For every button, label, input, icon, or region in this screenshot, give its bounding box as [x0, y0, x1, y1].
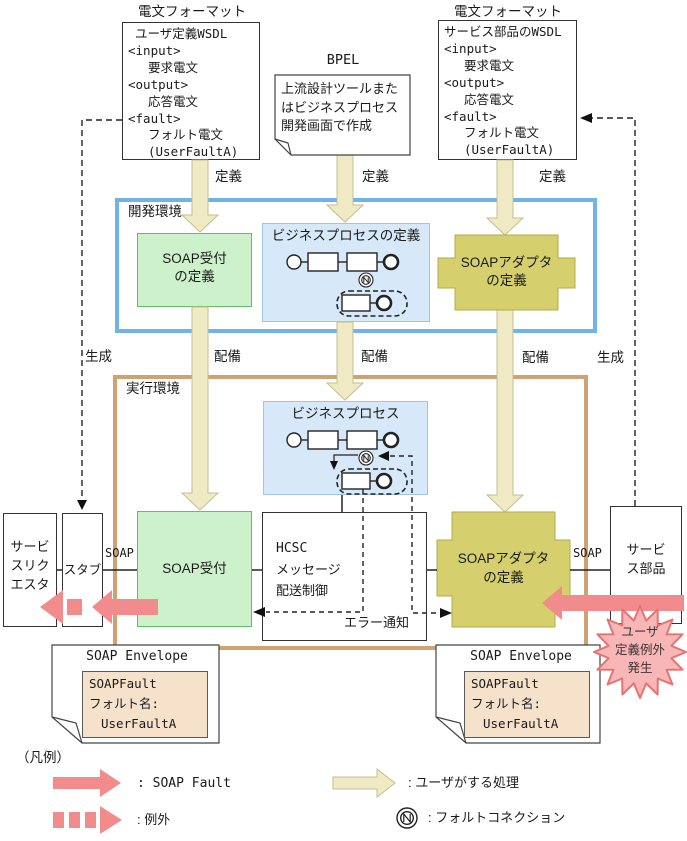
bpel-note-line: はビジネスプロセス — [281, 99, 398, 118]
activity-icon — [308, 431, 338, 449]
bp-def-mini-diagram — [287, 253, 407, 316]
legend-exception-dash — [85, 812, 96, 828]
soap-label-left: SOAP — [105, 545, 134, 561]
stub-label: スタブ — [62, 562, 103, 578]
error-arrowhead-to-faultconn — [378, 451, 389, 461]
deploy-arrow-middle — [327, 322, 363, 400]
envelope-fault-line: フォルト名: — [471, 694, 583, 714]
define-label-left: 定義 — [215, 169, 242, 185]
generate-dashed-right — [592, 118, 635, 506]
requester-line: エスタ — [3, 575, 57, 594]
dev-env-label: 開発環境 — [128, 204, 182, 220]
envelope-fault-line: UserFaultA — [89, 714, 201, 734]
bpel-title: BPEL — [276, 52, 410, 68]
runtime-env-label: 実行環境 — [126, 381, 180, 397]
adapter-def-line: SOAPアダプタ — [438, 254, 575, 272]
generate-label-left: 生成 — [85, 349, 112, 365]
soap-label-right: SOAP — [573, 545, 602, 561]
fault-hook-line — [334, 455, 358, 461]
requester-line: スリク — [3, 556, 57, 575]
envelope-left-title: SOAP Envelope — [67, 649, 207, 665]
service-requester-label: サービ スリク エスタ — [3, 537, 57, 594]
envelope-fault-line: SOAPFault — [89, 674, 201, 694]
legend-user-action-arrow — [333, 769, 395, 797]
envelope-fault-line: UserFaultA — [471, 714, 583, 734]
legend-exception-dash — [53, 812, 64, 828]
deploy-arrow-right — [487, 310, 523, 512]
envelope-left-fault-box: SOAPFault フォルト名: UserFaultA — [82, 671, 208, 738]
envelope-right-title: SOAP Envelope — [451, 649, 591, 665]
hcsc-line: 配送制御 — [276, 580, 341, 601]
bpel-note-text: 上流設計ツールまた はビジネスプロセス 開発画面で作成 — [281, 80, 398, 136]
soap-reception-label: SOAP受付 — [137, 561, 252, 577]
error-notify-label: エラー通知 — [344, 615, 409, 631]
activity-icon — [347, 431, 377, 449]
adapter-runtime-line: の定義 — [437, 568, 570, 587]
reception-def-label: SOAP受付 の定義 — [137, 250, 252, 286]
adapter-runtime-line: SOAPアダプタ — [437, 549, 570, 568]
define-label-right: 定義 — [539, 169, 566, 185]
exception-arrow-head — [40, 590, 63, 624]
bpel-note-line: 開発画面で作成 — [281, 117, 398, 136]
envelope-right-fault-box: SOAPFault フォルト名: UserFaultA — [464, 671, 590, 738]
legend-exception-label: : 例外 — [137, 812, 170, 828]
reception-def-line: の定義 — [137, 268, 252, 286]
component-line: サービ — [610, 540, 682, 559]
deploy-label-right: 配備 — [522, 350, 549, 366]
generate-arrowhead-right — [580, 113, 592, 123]
end-event-icon — [384, 255, 398, 269]
adapter-runtime-label: SOAPアダプタ の定義 — [437, 549, 570, 587]
deploy-label-left: 配備 — [214, 349, 241, 365]
format-label-left: 電文フォーマット — [124, 4, 260, 20]
legend-soap-fault-label: : SOAP Fault — [137, 776, 231, 792]
legend-fault-connection-label: : フォルトコネクション — [428, 810, 565, 826]
deploy-label-middle: 配備 — [361, 349, 388, 365]
hcsc-line: メッセージ — [276, 559, 341, 580]
format-label-right: 電文フォーマット — [440, 4, 576, 20]
fault-connection-icon — [359, 273, 373, 287]
activity-icon — [347, 253, 377, 271]
requester-line: サービ — [3, 537, 57, 556]
user-exception-label: ユーザ 定義例外 発生 — [598, 623, 682, 677]
end-event-icon — [384, 433, 398, 447]
error-arrowhead-to-adapter — [440, 608, 452, 618]
end-event-icon — [377, 296, 391, 310]
user-exception-line: 定義例外 — [598, 641, 682, 659]
define-arrow-middle — [327, 155, 363, 222]
bpel-note-line: 上流設計ツールまた — [281, 80, 398, 99]
legend-fault-connection-icon — [397, 808, 417, 828]
start-event-icon — [287, 255, 301, 269]
reception-def-line: SOAP受付 — [137, 250, 252, 268]
error-arrowhead-to-reception — [253, 607, 265, 617]
end-event-icon — [377, 474, 391, 488]
envelope-fault-line: SOAPFault — [471, 674, 583, 694]
user-exception-line: 発生 — [598, 659, 682, 677]
fault-arrow-to-stub — [92, 590, 158, 624]
legend-soap-fault-arrow — [53, 769, 121, 797]
activity-icon — [308, 253, 338, 271]
fault-connection-icon — [359, 451, 373, 465]
hcsc-label: HCSC メッセージ 配送制御 — [276, 538, 341, 601]
diagram-canvas: ユーザ定義WSDL <input> 要求電文 <output> 応答電文 <fa… — [0, 0, 687, 841]
adapter-def-line: の定義 — [438, 272, 575, 290]
exception-arrow-dash — [67, 599, 82, 615]
hcsc-line: HCSC — [276, 538, 341, 559]
define-arrow-left — [182, 160, 218, 232]
fault-activity-icon — [342, 295, 370, 311]
generate-dashed-left — [82, 120, 122, 500]
legend-exception-arrow-head — [100, 806, 122, 834]
envelope-fault-line: フォルト名: — [89, 694, 201, 714]
define-arrow-right — [487, 160, 523, 235]
generate-arrowhead-left — [77, 500, 87, 510]
start-event-icon — [287, 433, 301, 447]
fault-activity-icon — [342, 473, 370, 489]
component-line: ス部品 — [610, 559, 682, 578]
deploy-arrow-left — [182, 307, 218, 510]
fault-hook-arrowhead — [330, 461, 338, 470]
legend-title: （凡例） — [16, 750, 70, 766]
legend-user-action-label: : ユーザがする処理 — [408, 775, 519, 791]
bp-def-title: ビジネスプロセスの定義 — [262, 228, 430, 244]
service-component-label: サービ ス部品 — [610, 540, 682, 578]
user-exception-line: ユーザ — [598, 623, 682, 641]
bp-runtime-mini-diagram — [287, 431, 407, 494]
legend-exception-dash — [69, 812, 80, 828]
adapter-def-label: SOAPアダプタ の定義 — [438, 254, 575, 290]
bp-runtime-title: ビジネスプロセス — [263, 406, 428, 422]
generate-label-right: 生成 — [597, 350, 624, 366]
define-label-middle: 定義 — [362, 169, 389, 185]
